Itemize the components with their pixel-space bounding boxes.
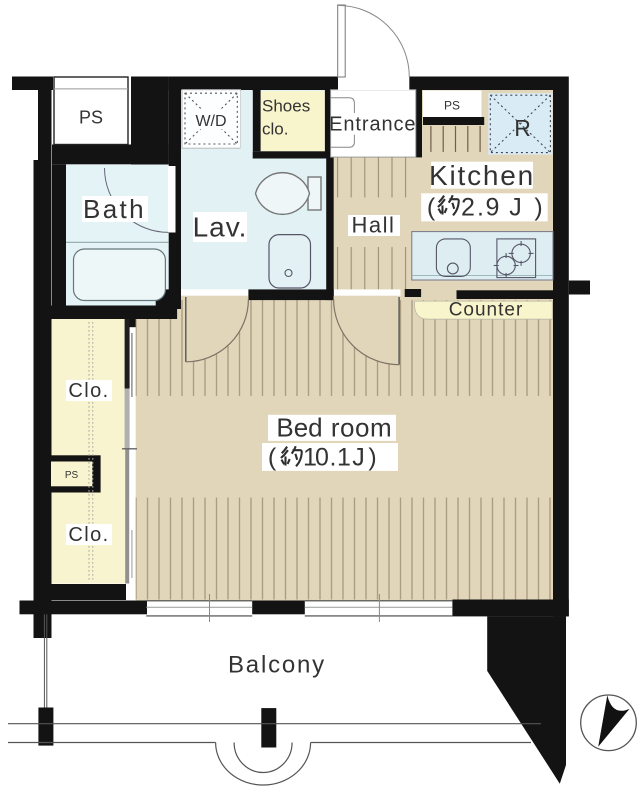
svg-text:Entrance: Entrance (329, 114, 416, 136)
svg-text:W/D: W/D (195, 113, 226, 130)
svg-text:clo.: clo. (262, 120, 288, 139)
svg-text:9: 9 (486, 194, 500, 222)
svg-text:Bed: Bed (276, 413, 322, 443)
svg-text:Counter: Counter (449, 300, 524, 321)
svg-text:PS: PS (65, 470, 79, 481)
svg-text:Hall: Hall (352, 213, 396, 238)
svg-text:(: ( (427, 194, 436, 222)
svg-text:1: 1 (337, 444, 351, 472)
svg-text:Shoes: Shoes (262, 97, 310, 116)
svg-text:): ) (368, 444, 376, 472)
svg-text:Kitchen: Kitchen (429, 160, 535, 191)
svg-text:J: J (352, 444, 365, 472)
svg-text:room: room (331, 413, 392, 443)
svg-text:2: 2 (461, 194, 475, 222)
svg-text:0: 0 (315, 444, 329, 472)
svg-text:PS: PS (444, 99, 460, 113)
svg-text:R: R (514, 115, 531, 141)
svg-text:.: . (477, 194, 484, 222)
svg-text:J: J (509, 194, 522, 222)
svg-text:Balcony: Balcony (228, 652, 326, 679)
svg-text:Lav.: Lav. (193, 212, 248, 243)
svg-text:): ) (534, 194, 542, 222)
svg-text:PS: PS (79, 108, 103, 128)
svg-text:.: . (330, 444, 337, 472)
svg-text:Bath: Bath (83, 194, 146, 224)
svg-text:Clo.: Clo. (68, 380, 109, 402)
svg-text:Clo.: Clo. (68, 524, 109, 546)
svg-text:(: ( (268, 444, 277, 472)
